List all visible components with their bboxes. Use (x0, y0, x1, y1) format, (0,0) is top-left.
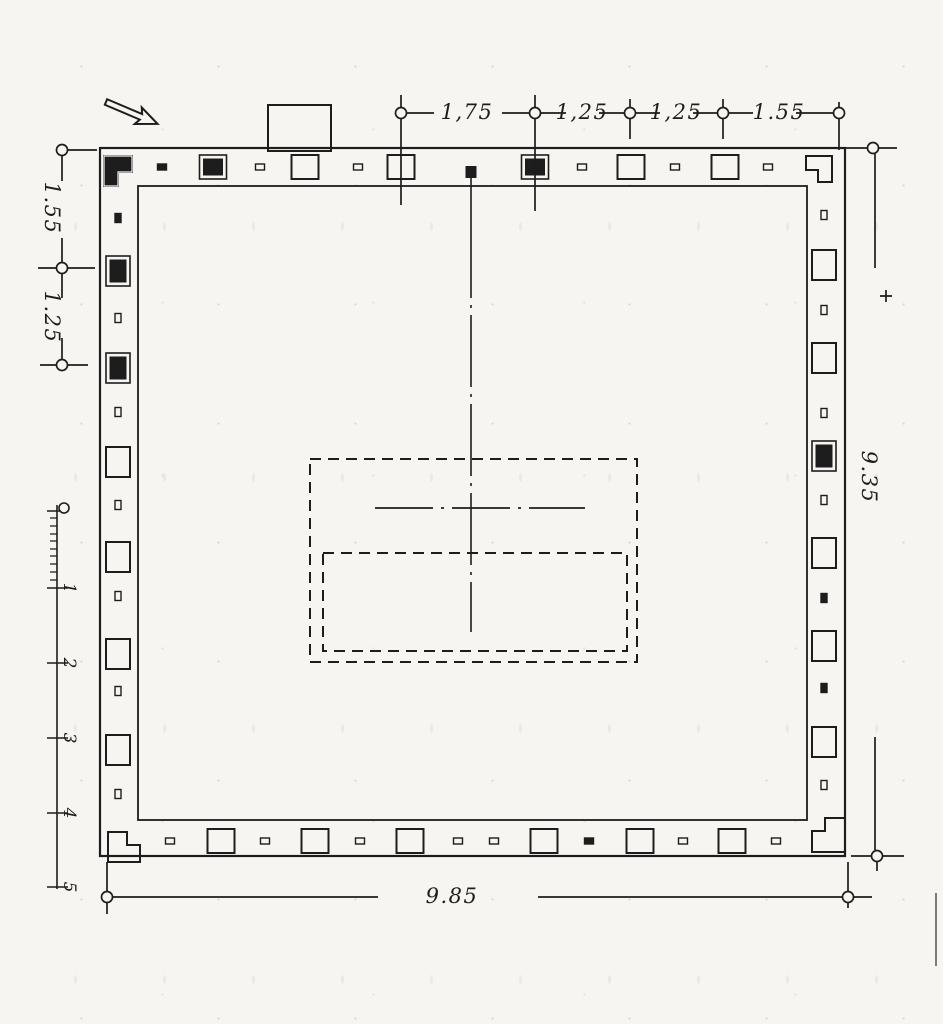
wall-tick (772, 838, 781, 844)
wall-tick (671, 164, 680, 170)
wall-tick (821, 409, 827, 418)
pillar-filled-core (816, 445, 833, 468)
dimension-right (845, 143, 904, 872)
wall-tick (764, 164, 773, 170)
wall-tick (115, 790, 121, 799)
scale-label-3: 3 (59, 733, 79, 744)
dim-label-top-4: 1.55 (753, 100, 806, 124)
pillar-open (106, 639, 130, 669)
wall-tick (821, 594, 827, 603)
pillar-open (531, 829, 558, 853)
wall-tick (256, 164, 265, 170)
pillar-open (106, 447, 130, 477)
pillar-open (812, 343, 836, 373)
pillar-open (106, 735, 130, 765)
wall-tick (821, 684, 827, 693)
pillar-open (719, 829, 746, 853)
pillar-open (208, 829, 235, 853)
porch-outline (268, 105, 331, 151)
wall-tick (115, 687, 121, 696)
scale-bar (47, 503, 69, 889)
wall-tick (490, 838, 499, 844)
wall-tick (821, 496, 827, 505)
wall-tick (356, 838, 365, 844)
pillar-filled-core (203, 159, 223, 176)
dim-label-left-2: 1.25 (40, 291, 64, 344)
scanned-plan-sheet: 1,75 1,25 1,25 1.55 1.55 1.25 9.35 9.85 … (0, 0, 943, 1024)
gate-axis-square (466, 166, 477, 178)
corner-pillar-tr-open (806, 156, 832, 182)
dimension-bottom (102, 862, 873, 914)
dim-label-left-1: 1.55 (40, 182, 64, 235)
north-arrow-icon (102, 94, 161, 132)
pillar-open (302, 829, 329, 853)
pillar-open (627, 829, 654, 853)
pillar-open (812, 727, 836, 757)
wall-tick (115, 214, 121, 223)
scale-label-4: 4 (59, 808, 79, 819)
wall-tick (261, 838, 270, 844)
wall-tick (115, 408, 121, 417)
pillar-filled-core (110, 260, 127, 283)
scale-label-5: 5 (59, 882, 79, 893)
pillar-open (712, 155, 739, 179)
wall-tick (158, 164, 167, 170)
wall-tick (679, 838, 688, 844)
dim-label-bottom: 9.85 (426, 884, 479, 908)
wall-tick (821, 306, 827, 315)
pillar-filled-core (110, 357, 127, 380)
wall-tick (115, 592, 121, 601)
pillar-open (106, 542, 130, 572)
pillar-open (292, 155, 319, 179)
central-dashed-outline-inner (323, 553, 627, 651)
dim-label-top-3: 1,25 (650, 100, 703, 124)
wall-tick (454, 838, 463, 844)
inner-court-outline (138, 186, 807, 820)
axis-lines (375, 178, 585, 632)
wall-tick (585, 838, 594, 844)
scale-label-1: 1 (59, 583, 79, 594)
pillar-open (397, 829, 424, 853)
outer-wall-outline (100, 148, 845, 856)
wall-tick (115, 501, 121, 510)
plan-drawing (0, 0, 943, 1024)
corner-pillar-bl-open (108, 832, 140, 862)
pillar-open (812, 631, 836, 661)
central-dashed-outline-outer (310, 459, 637, 662)
wall-layer (100, 148, 845, 856)
corner-pillar-br-open (812, 818, 845, 852)
wall-tick (821, 211, 827, 220)
wall-tick (115, 314, 121, 323)
pillar-open (812, 250, 836, 280)
pillar-open (812, 538, 836, 568)
wall-tick (354, 164, 363, 170)
wall-tick (166, 838, 175, 844)
dim-label-top-2: 1,25 (556, 100, 609, 124)
dim-label-top-1: 1,75 (441, 100, 494, 124)
wall-tick (578, 164, 587, 170)
wall-tick (821, 781, 827, 790)
scale-label-2: 2 (59, 658, 79, 669)
pillar-open (618, 155, 645, 179)
dim-label-right: 9.35 (857, 451, 881, 504)
